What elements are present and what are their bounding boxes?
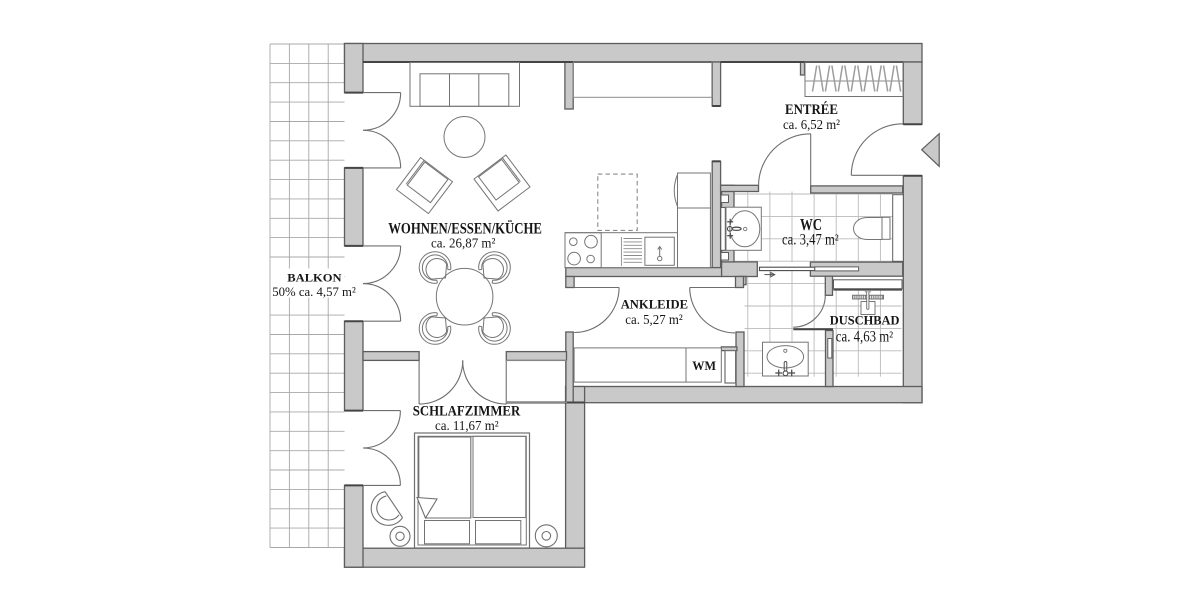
svg-text:WOHNEN/ESSEN/KÜCHE: WOHNEN/ESSEN/KÜCHE [388, 220, 542, 238]
svg-text:ca. 5,27 m²: ca. 5,27 m² [625, 313, 682, 328]
svg-text:ca. 11,67 m²: ca. 11,67 m² [435, 418, 499, 433]
svg-text:ENTRÉE: ENTRÉE [785, 101, 838, 118]
svg-text:BALKON: BALKON [287, 270, 342, 284]
svg-text:ca. 26,87 m²: ca. 26,87 m² [431, 236, 495, 251]
svg-text:ca. 4,63 m²: ca. 4,63 m² [836, 329, 894, 346]
svg-text:ca. 3,47 m²: ca. 3,47 m² [782, 232, 839, 249]
svg-text:ca. 6,52 m²: ca. 6,52 m² [783, 118, 840, 133]
svg-text:DUSCHBAD: DUSCHBAD [830, 314, 900, 328]
svg-text:ANKLEIDE: ANKLEIDE [621, 297, 688, 312]
svg-text:WM: WM [692, 359, 716, 373]
svg-text:50% ca. 4,57 m²: 50% ca. 4,57 m² [272, 284, 356, 299]
